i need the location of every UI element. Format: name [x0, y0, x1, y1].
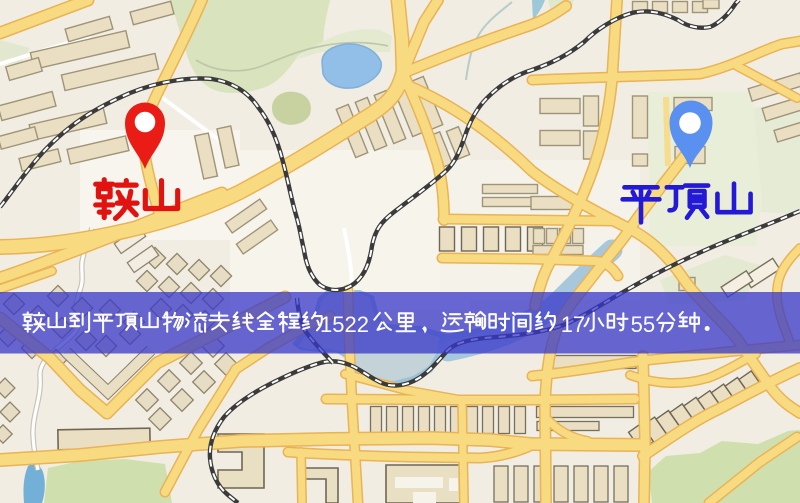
svg-text:1522: 1522 [320, 312, 369, 337]
svg-text:17: 17 [561, 312, 585, 337]
svg-text:55: 55 [631, 312, 655, 337]
